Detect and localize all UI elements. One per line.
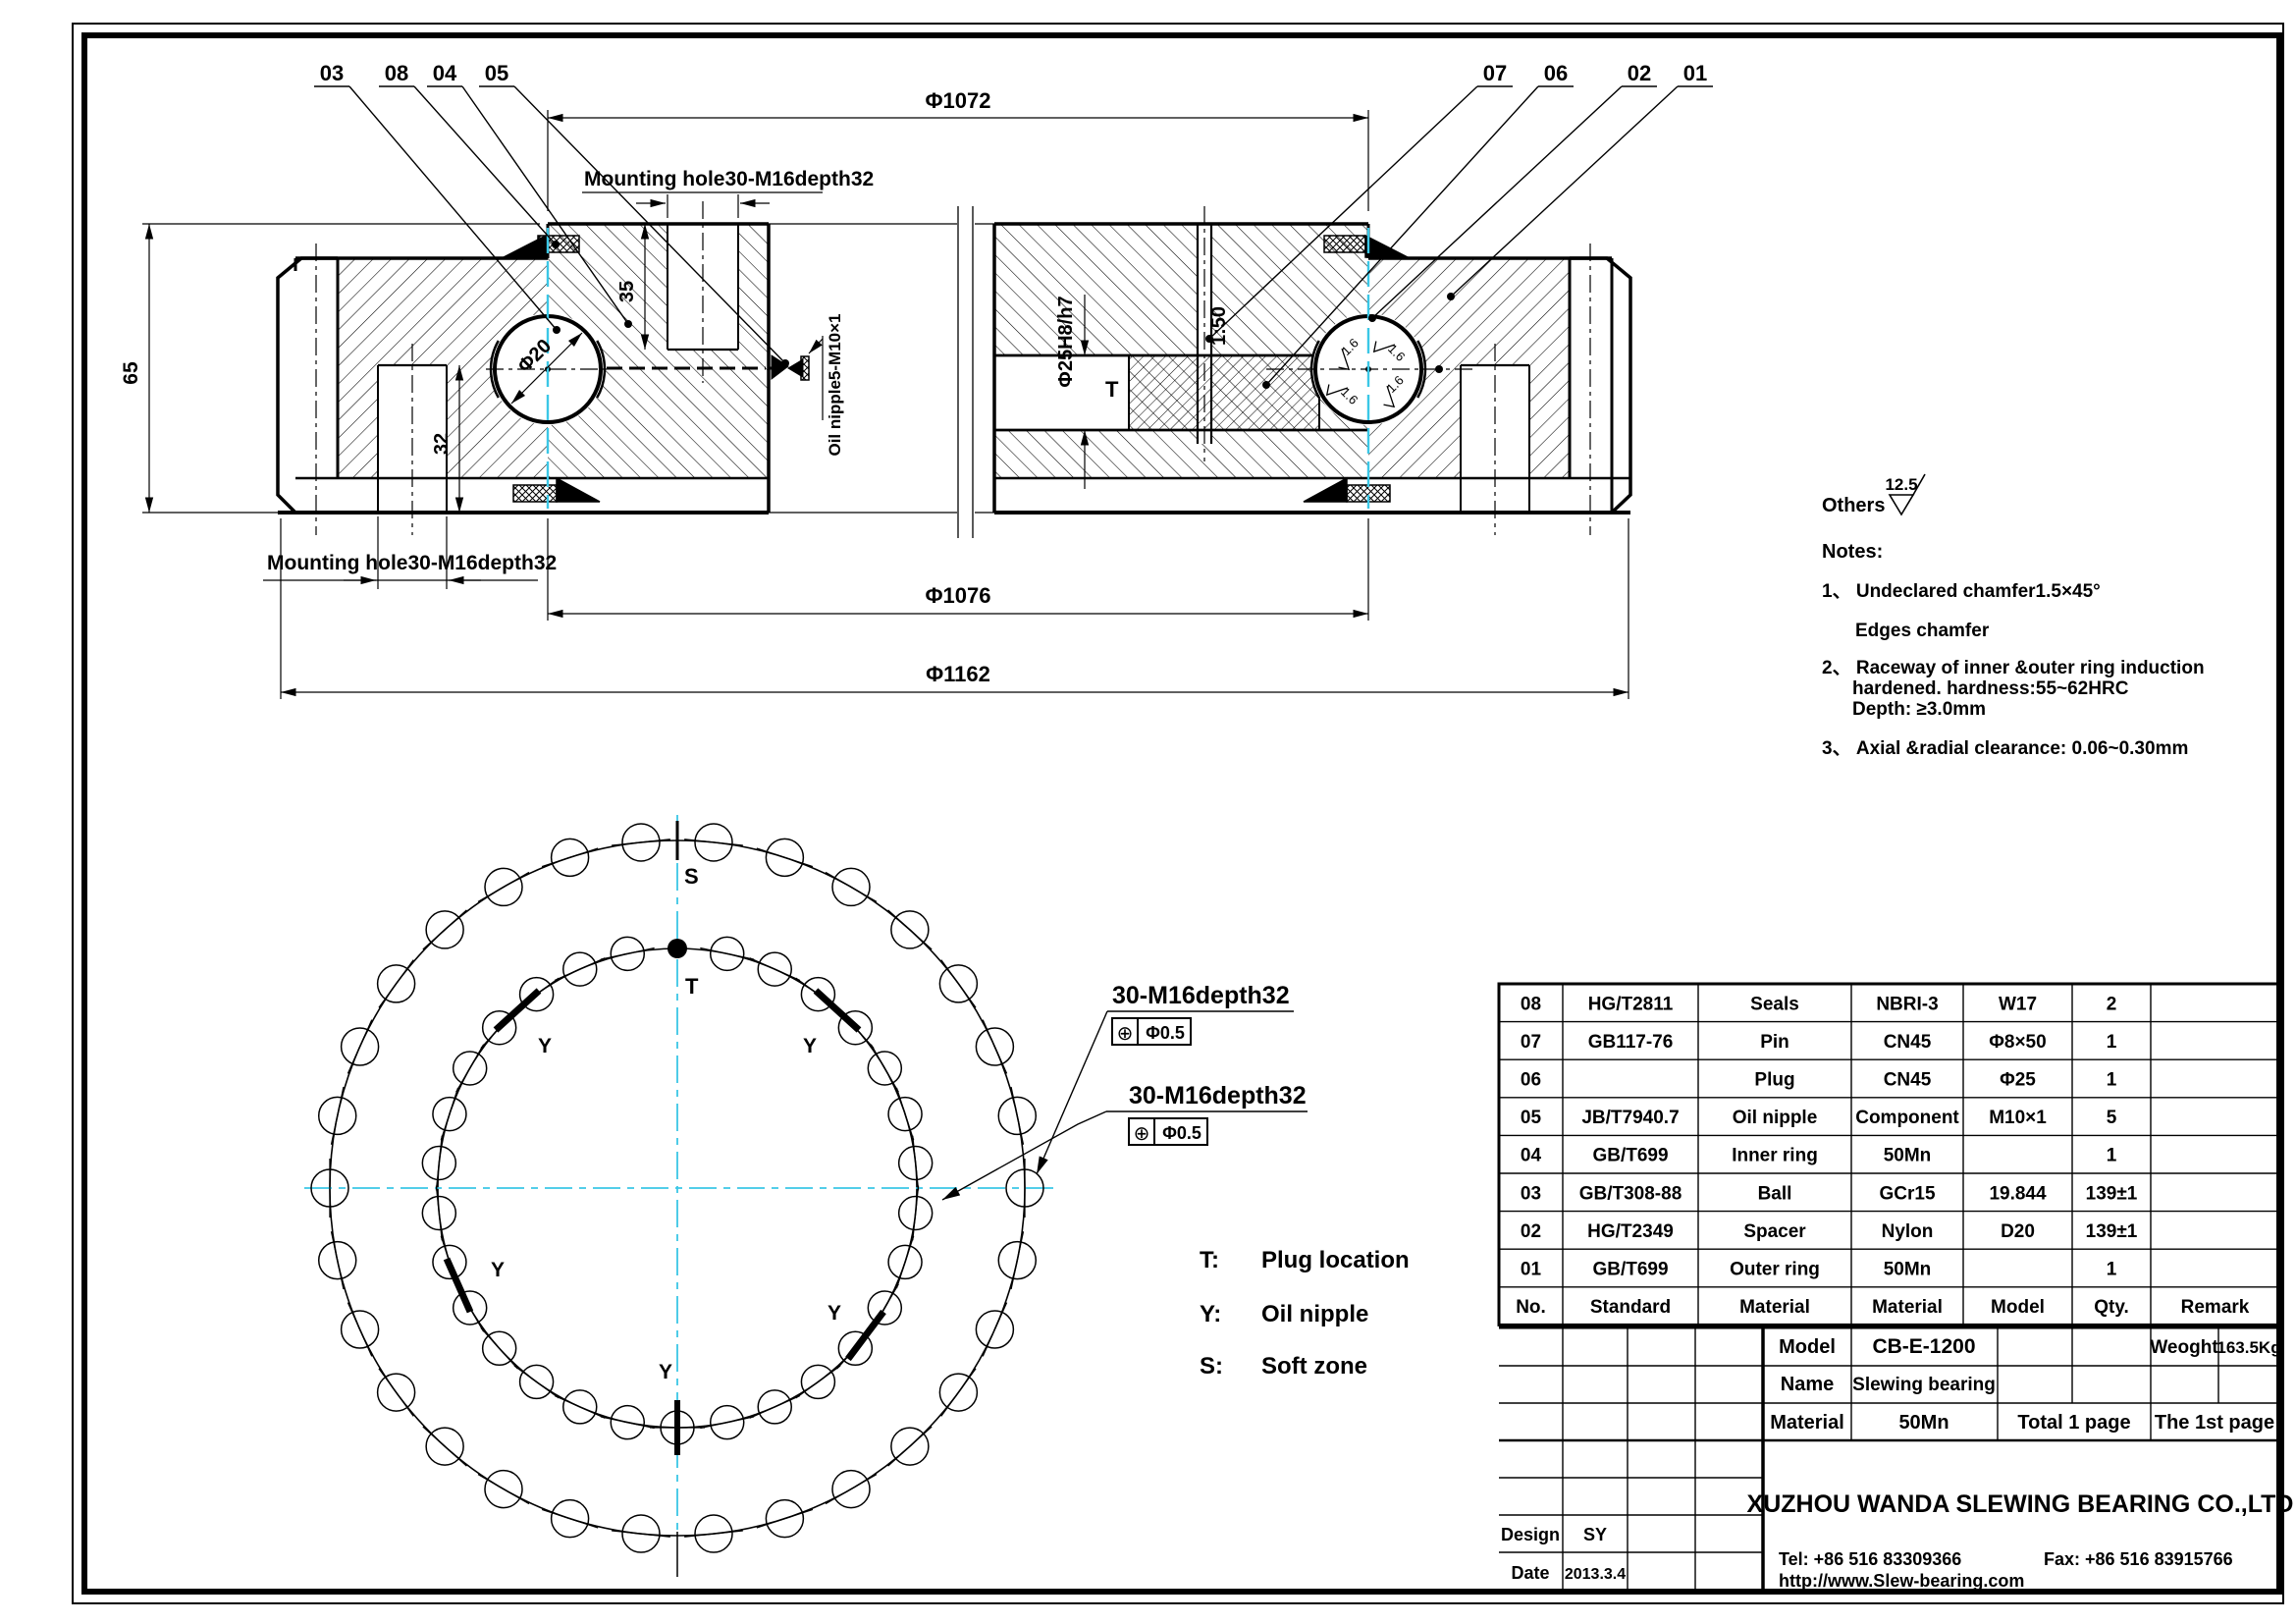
design-label: Design bbox=[1501, 1525, 1560, 1544]
oil-nipple-marks bbox=[447, 991, 883, 1455]
label-plug-t: T bbox=[1105, 377, 1119, 402]
weight-value: 163.5Kg bbox=[2216, 1338, 2280, 1357]
material-value: 50Mn bbox=[1898, 1412, 1949, 1434]
name-label: Name bbox=[1781, 1374, 1834, 1395]
note-2a: 2、 Raceway of inner &outer ring inductio… bbox=[1822, 658, 2205, 678]
balloon-05: 05 bbox=[485, 61, 508, 85]
legend: T: Plug location Y: Oil nipple S: Soft z… bbox=[1200, 1247, 1410, 1380]
bom-cell: Oil nipple bbox=[1733, 1108, 1818, 1128]
bom-cell: CN45 bbox=[1884, 1032, 1932, 1053]
legend-key-t: T: bbox=[1200, 1247, 1219, 1273]
notes: Others 12.5 Notes: 1、 Undeclared chamfer… bbox=[1822, 474, 2205, 759]
bom-cell: HG/T2349 bbox=[1587, 1221, 1674, 1242]
balloon-07: 07 bbox=[1483, 61, 1507, 85]
balloon-06: 06 bbox=[1544, 61, 1568, 85]
bom-header-cell: Material bbox=[1739, 1297, 1810, 1318]
bom-cell: Pin bbox=[1760, 1032, 1789, 1053]
callout-lower-label: 30-M16depth32 bbox=[1129, 1082, 1307, 1110]
balloon-08: 08 bbox=[385, 61, 408, 85]
bom-cell: 1 bbox=[2107, 1070, 2117, 1091]
balloon-02: 02 bbox=[1628, 61, 1651, 85]
company-name: XUZHOU WANDA SLEWING BEARING CO.,LTD bbox=[1747, 1490, 2294, 1518]
legend-val-t: Plug location bbox=[1261, 1247, 1410, 1273]
bom-table: 08HG/T2811SealsNBRI-3W17207GB117-76PinCN… bbox=[1499, 984, 2279, 1325]
notes-title: Notes: bbox=[1822, 541, 1883, 563]
bom-cell: Component bbox=[1855, 1108, 1959, 1128]
legend-key-y: Y: bbox=[1200, 1301, 1221, 1327]
note-2b: hardened. hardness:55~62HRC bbox=[1852, 678, 2129, 699]
position-icon: ⊕ bbox=[1134, 1123, 1150, 1145]
balloon-01: 01 bbox=[1683, 61, 1707, 85]
material-label: Material bbox=[1770, 1412, 1844, 1434]
others-roughness: 12.5 bbox=[1885, 475, 1917, 494]
bom-cell: Nylon bbox=[1882, 1221, 1934, 1242]
plan-label-y: Y bbox=[538, 1035, 552, 1057]
bom-cell: Φ8×50 bbox=[1989, 1032, 2046, 1053]
dim-phi1162: Φ1162 bbox=[926, 662, 990, 686]
weight-label: Weoght bbox=[2150, 1337, 2218, 1358]
plan-view: S T Y Y Y Y Y 30-M16depth32 ⊕ Φ0.5 30-M1… bbox=[304, 815, 1308, 1577]
callout-lower-tol: Φ0.5 bbox=[1162, 1123, 1201, 1143]
legend-val-y: Oil nipple bbox=[1261, 1301, 1368, 1327]
bom-cell: 07 bbox=[1521, 1032, 1541, 1053]
label-mount-top: Mounting hole30-M16depth32 bbox=[584, 168, 874, 190]
page-number: The 1st page bbox=[2155, 1412, 2274, 1434]
legend-key-s: S: bbox=[1200, 1353, 1223, 1380]
bom-cell: Ball bbox=[1758, 1183, 1792, 1204]
dim-65: 65 bbox=[120, 361, 142, 385]
bom-header-cell: Remark bbox=[2181, 1297, 2250, 1318]
model-label: Model bbox=[1779, 1336, 1836, 1358]
bom-cell: Inner ring bbox=[1732, 1146, 1818, 1166]
balloon-03: 03 bbox=[320, 61, 344, 85]
note-1b: Edges chamfer bbox=[1855, 621, 1990, 641]
bom-cell: 1 bbox=[2107, 1260, 2117, 1280]
bom-cell: Plug bbox=[1754, 1070, 1794, 1091]
plan-label-s: S bbox=[684, 864, 699, 889]
dim-phi25: Φ25H8/h7 bbox=[1055, 296, 1077, 387]
plan-label-t: T bbox=[685, 974, 699, 999]
label-oil-nipple: Oil nipple5-M10×1 bbox=[826, 313, 844, 456]
plan-label-y: Y bbox=[491, 1259, 505, 1281]
plan-label-y: Y bbox=[828, 1302, 841, 1325]
bom-cell: CN45 bbox=[1884, 1070, 1932, 1091]
bom-cell: GCr15 bbox=[1879, 1183, 1935, 1204]
section-view: 1.6 1.6 1.6 1.6 bbox=[120, 61, 1713, 699]
inner-ring-right-section bbox=[994, 224, 1368, 478]
bom-cell: Φ25 bbox=[2000, 1070, 2036, 1091]
callout-upper-tol: Φ0.5 bbox=[1146, 1023, 1185, 1043]
bom-cell: HG/T2811 bbox=[1588, 994, 1674, 1014]
bom-cell: 03 bbox=[1521, 1183, 1541, 1204]
company-tel: Tel: +86 516 83309366 bbox=[1779, 1549, 1961, 1569]
total-pages: Total 1 page bbox=[2017, 1412, 2130, 1434]
bom-cell: 1 bbox=[2107, 1032, 2117, 1053]
plan-label-y: Y bbox=[659, 1361, 672, 1383]
bom-header-cell: Qty. bbox=[2094, 1297, 2129, 1318]
bom-cell: Outer ring bbox=[1730, 1260, 1820, 1280]
bom-cell: NBRI-3 bbox=[1876, 994, 1938, 1014]
title-block: Model CB-E-1200 Weoght 163.5Kg Name Slew… bbox=[1499, 1326, 2293, 1592]
callout-upper-label: 30-M16depth32 bbox=[1112, 982, 1290, 1009]
bom-cell: GB/T699 bbox=[1592, 1146, 1668, 1166]
plug-section bbox=[1129, 355, 1319, 430]
dim-32: 32 bbox=[431, 433, 453, 455]
date-label: Date bbox=[1511, 1563, 1549, 1583]
bom-cell: 08 bbox=[1521, 994, 1541, 1014]
bom-cell: JB/T7940.7 bbox=[1581, 1108, 1679, 1128]
bom-cell: 5 bbox=[2107, 1108, 2117, 1128]
note-2c: Depth: ≥3.0mm bbox=[1852, 699, 1986, 720]
bom-cell: 2 bbox=[2107, 994, 2117, 1014]
company-url: http://www.Slew-bearing.com bbox=[1779, 1571, 2024, 1591]
bom-cell: 139±1 bbox=[2086, 1221, 2138, 1242]
dim-phi1072: Φ1072 bbox=[926, 88, 991, 113]
plug-location-dot bbox=[667, 939, 687, 958]
bom-cell: Spacer bbox=[1743, 1221, 1806, 1242]
model-value: CB-E-1200 bbox=[1872, 1335, 1975, 1358]
balloon-04: 04 bbox=[433, 61, 457, 85]
note-1a: 1、 Undeclared chamfer1.5×45° bbox=[1822, 581, 2101, 602]
company-fax: Fax: +86 516 83915766 bbox=[2044, 1549, 2233, 1569]
bom-cell: M10×1 bbox=[1989, 1108, 2047, 1128]
legend-val-s: Soft zone bbox=[1261, 1353, 1367, 1380]
bom-cell: Seals bbox=[1750, 994, 1799, 1014]
bom-cell: 19.844 bbox=[1989, 1183, 2047, 1204]
bom-header-cell: Standard bbox=[1590, 1297, 1671, 1318]
bom-cell: GB/T699 bbox=[1592, 1260, 1668, 1280]
bom-cell: D20 bbox=[2001, 1221, 2035, 1242]
bom-cell: 05 bbox=[1521, 1108, 1542, 1128]
bom-cell: 01 bbox=[1521, 1260, 1542, 1280]
bom-cell: 06 bbox=[1521, 1070, 1541, 1091]
plan-label-y: Y bbox=[803, 1035, 817, 1057]
dim-phi1076: Φ1076 bbox=[926, 583, 991, 608]
bom-cell: 02 bbox=[1521, 1221, 1541, 1242]
bom-cell: 139±1 bbox=[2086, 1183, 2138, 1204]
bom-header-cell: No. bbox=[1516, 1297, 1546, 1318]
bom-cell: 50Mn bbox=[1884, 1146, 1932, 1166]
others-label: Others bbox=[1822, 495, 1885, 516]
note-3: 3、 Axial &radial clearance: 0.06~0.30mm bbox=[1822, 738, 2188, 759]
bom-cell: 1 bbox=[2107, 1146, 2117, 1166]
bom-cell: 50Mn bbox=[1884, 1260, 1932, 1280]
oil-nipple-symbol bbox=[769, 355, 809, 380]
design-value: SY bbox=[1583, 1525, 1607, 1544]
bom-cell: GB117-76 bbox=[1588, 1032, 1674, 1053]
bom-cell: W17 bbox=[1999, 994, 2037, 1014]
name-value: Slewing bearing bbox=[1852, 1375, 1996, 1395]
drawing-sheet: 1.6 1.6 1.6 1.6 bbox=[0, 0, 2296, 1624]
bom-header-cell: Material bbox=[1872, 1297, 1943, 1318]
bom-header-cell: Model bbox=[1991, 1297, 2045, 1318]
position-icon: ⊕ bbox=[1117, 1023, 1134, 1045]
date-value: 2013.3.4 bbox=[1565, 1566, 1626, 1583]
bom-cell: GB/T308-88 bbox=[1579, 1183, 1682, 1204]
bom-cell: 04 bbox=[1521, 1146, 1542, 1166]
dim-35: 35 bbox=[616, 281, 638, 302]
label-mount-bottom: Mounting hole30-M16depth32 bbox=[267, 552, 557, 574]
